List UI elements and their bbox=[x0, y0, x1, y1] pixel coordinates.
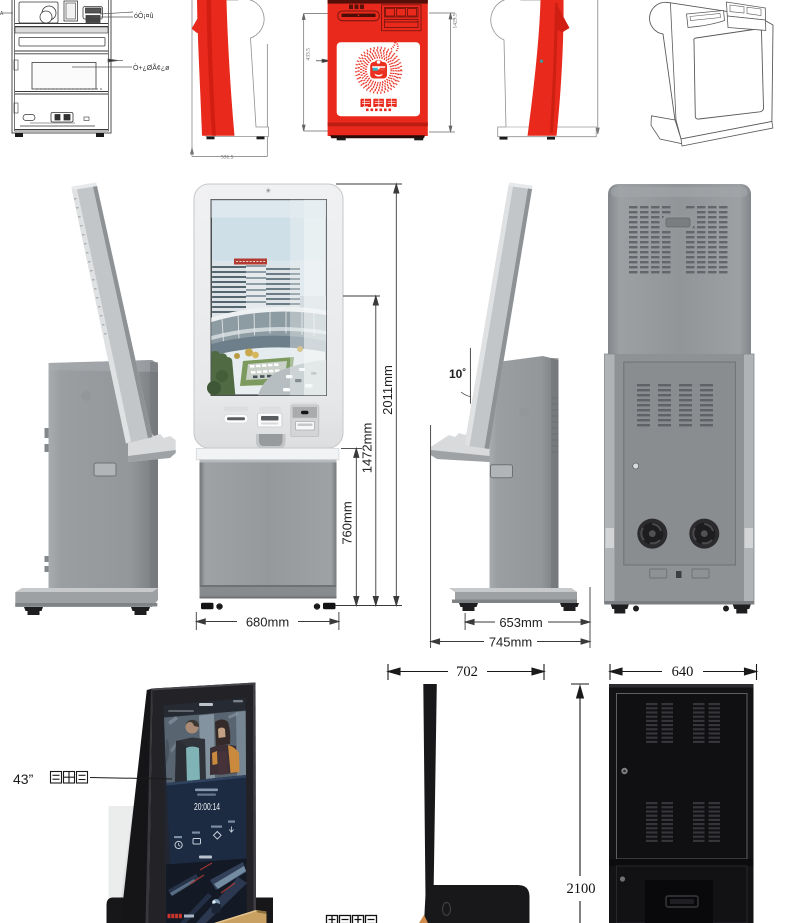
svg-text:653mm: 653mm bbox=[499, 615, 542, 630]
svg-text:óÔ¡¤û: óÔ¡¤û bbox=[134, 11, 154, 20]
svg-text:2100: 2100 bbox=[567, 881, 596, 897]
svg-text:702: 702 bbox=[456, 664, 478, 680]
svg-text:640: 640 bbox=[672, 664, 694, 680]
svg-text:20:00:14: 20:00:14 bbox=[194, 802, 220, 813]
svg-text:Ò+¿ØÃ¢¿ø: Ò+¿ØÃ¢¿ø bbox=[133, 63, 170, 72]
svg-text:1429.5: 1429.5 bbox=[453, 13, 459, 28]
svg-text:760mm: 760mm bbox=[340, 501, 355, 544]
svg-text:531.5: 531.5 bbox=[221, 155, 234, 161]
svg-text:1472mm: 1472mm bbox=[359, 423, 374, 474]
svg-text:2011mm: 2011mm bbox=[380, 365, 395, 415]
svg-text:10˚: 10˚ bbox=[449, 367, 466, 381]
svg-text:745mm: 745mm bbox=[489, 635, 532, 650]
svg-text:680mm: 680mm bbox=[246, 615, 289, 630]
svg-text:43”: 43” bbox=[13, 771, 34, 787]
svg-text:433.5: 433.5 bbox=[306, 48, 312, 61]
svg-text:A: A bbox=[0, 11, 4, 17]
